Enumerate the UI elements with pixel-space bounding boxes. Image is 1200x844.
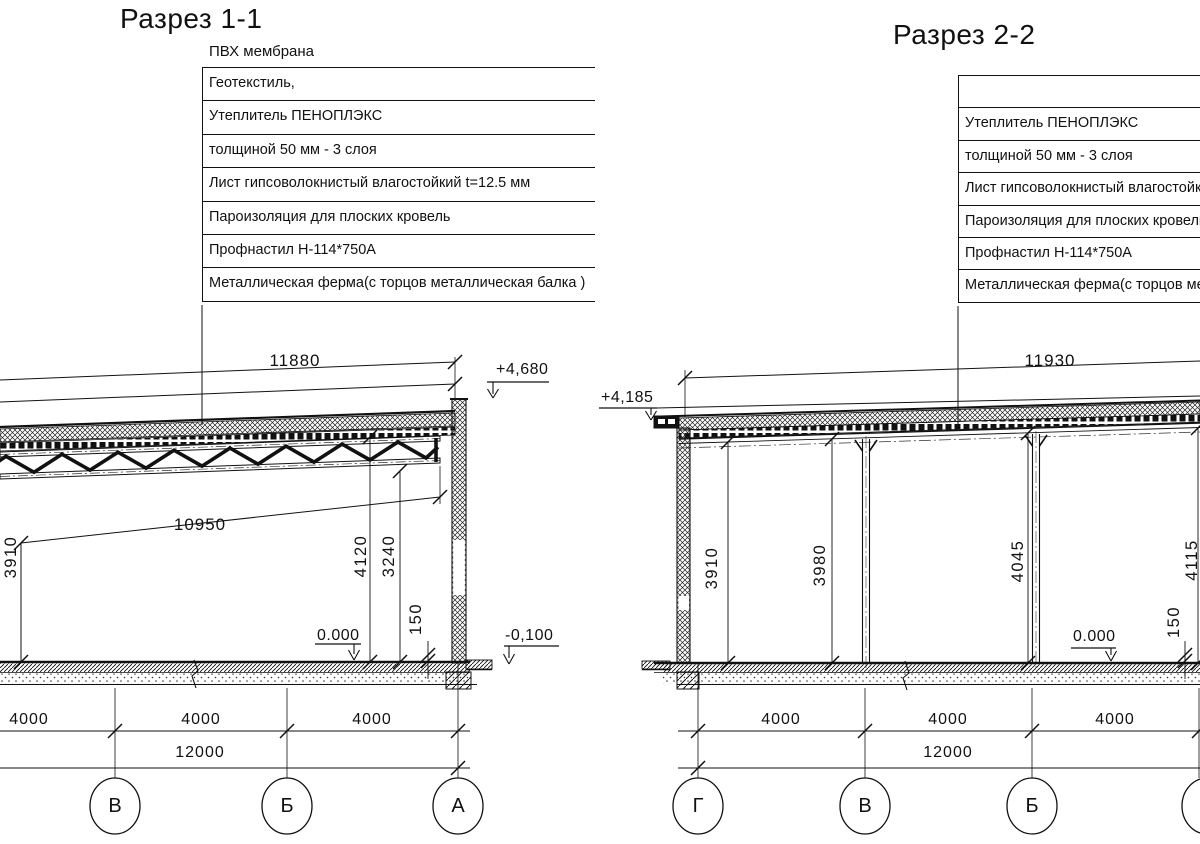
section2-axis-label-v: В bbox=[839, 778, 891, 834]
section1-floor bbox=[0, 660, 492, 689]
callout-row: Геотекстиль, bbox=[203, 68, 595, 101]
section2-span-label: 4000 bbox=[903, 711, 993, 729]
callout-row: толщиной 50 мм - 3 слоя bbox=[203, 135, 595, 168]
callout-row: Металлическая ферма(с торцов металлическ… bbox=[203, 268, 595, 301]
section1-level-zero-label: 0.000 bbox=[317, 627, 360, 645]
section2-level-zero-label: 0.000 bbox=[1073, 628, 1116, 646]
section2-level-roof-label: +4,185 bbox=[601, 389, 653, 407]
section2-axis-label-b: Б bbox=[1006, 778, 1058, 834]
callout-row: Лист гипсоволокнистый влагостойкий t=12.… bbox=[959, 173, 1200, 205]
callout-row: Пароизоляция для плоских кровель bbox=[203, 202, 595, 235]
section1-dim-slab-label: 150 bbox=[407, 584, 425, 654]
section2-drawing bbox=[599, 306, 1200, 834]
section2-span-label: 4000 bbox=[736, 711, 826, 729]
callout-row bbox=[959, 76, 1200, 108]
section1-title: Разрез 1-1 bbox=[120, 3, 262, 35]
section2-wall bbox=[677, 428, 690, 663]
section2-dim-roof-span-label: 11930 bbox=[1005, 351, 1095, 371]
section2-dim-height-label: 4115 bbox=[1183, 525, 1200, 595]
section1-level-minus-mark bbox=[504, 646, 560, 664]
section1-callout-box: Геотекстиль, Утеплитель ПЕНОПЛЭКС толщин… bbox=[202, 67, 595, 302]
section1-dim-roof-span-label: 11880 bbox=[250, 351, 340, 371]
section1-dim-height-truss-bottom-label: 3240 bbox=[380, 521, 398, 591]
section2-roof bbox=[654, 401, 1200, 449]
section2-level-zero-mark bbox=[1071, 648, 1117, 661]
section2-level-roof-mark bbox=[599, 408, 657, 420]
section2-title: Разрез 2-2 bbox=[893, 19, 1035, 51]
section2-dim-height-label: 3910 bbox=[703, 533, 721, 603]
section2-axis-bubbles bbox=[673, 778, 1200, 834]
section1-dim-height-truss-top-label: 4120 bbox=[352, 521, 370, 591]
section1-span-label: 4000 bbox=[327, 711, 417, 729]
section1-roof-top-label: ПВХ мембрана bbox=[209, 43, 314, 60]
section1-level-minus-label: -0,100 bbox=[505, 627, 553, 645]
callout-row: Утеплитель ПЕНОПЛЭКС bbox=[203, 101, 595, 134]
section1-level-parapet-mark bbox=[487, 382, 549, 398]
section2-column-v bbox=[855, 436, 877, 668]
drawing-canvas: Разрез 1-1 ПВХ мембрана Геотекстиль, Уте… bbox=[0, 0, 1200, 844]
section1-wall bbox=[450, 399, 468, 663]
section1-dim-clear-span-label: 10950 bbox=[155, 515, 245, 535]
section1-axis-label-v: В bbox=[89, 778, 141, 834]
section1-dim-roof-span bbox=[0, 355, 462, 402]
callout-row: Утеплитель ПЕНОПЛЭКС bbox=[959, 108, 1200, 140]
callout-row: Профнастил Н-114*750А bbox=[959, 238, 1200, 270]
callout-row: Профнастил Н-114*750А bbox=[203, 235, 595, 268]
section2-span-label: 4000 bbox=[1070, 711, 1160, 729]
section1-drawing bbox=[0, 305, 559, 834]
section2-dim-height-label: 4045 bbox=[1009, 526, 1027, 596]
section1-span-label: 4000 bbox=[0, 711, 74, 729]
section2-total-span-label: 12000 bbox=[903, 744, 993, 762]
section1-axis-label-a: А bbox=[432, 778, 484, 834]
section1-level-zero-mark bbox=[315, 644, 361, 660]
section2-dim-slab-label: 150 bbox=[1165, 587, 1183, 657]
section2-callout-box: Утеплитель ПЕНОПЛЭКС толщиной 50 мм - 3 … bbox=[958, 75, 1200, 303]
callout-row: Лист гипсоволокнистый влагостойкий t=12.… bbox=[203, 168, 595, 201]
section2-dim-height-label: 3980 bbox=[811, 530, 829, 600]
section2-axis-label-a bbox=[1181, 778, 1200, 834]
callout-row: Металлическая ферма(с торцов металлическ… bbox=[959, 270, 1200, 302]
section1-span-label: 4000 bbox=[156, 711, 246, 729]
callout-row: толщиной 50 мм - 3 слоя bbox=[959, 141, 1200, 173]
section1-total-span-label: 12000 bbox=[155, 744, 245, 762]
section1-axis-label-b: Б bbox=[261, 778, 313, 834]
callout-row: Пароизоляция для плоских кровель bbox=[959, 206, 1200, 238]
section2-dim-heights bbox=[721, 421, 1200, 679]
section1-dim-height-wall-label: 3910 bbox=[2, 522, 20, 592]
section1-level-parapet-label: +4,680 bbox=[496, 361, 548, 379]
section2-axis-label-g: Г bbox=[672, 778, 724, 834]
